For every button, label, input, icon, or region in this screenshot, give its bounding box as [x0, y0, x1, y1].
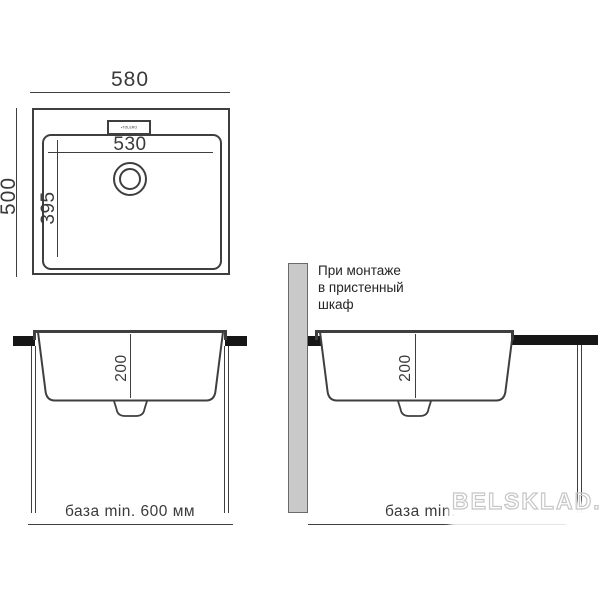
dim-line-overall-width: [30, 92, 230, 93]
mounting-note-line1: При монтаже: [318, 262, 438, 279]
sink-rim-right: [315, 330, 514, 333]
dim-line-bowl-depth: [57, 140, 58, 257]
drain-inner-circle: [119, 168, 141, 190]
dim-label-bowl-height-right: 200: [394, 338, 418, 398]
brand-logo-tab: ▪TOLERO: [107, 120, 151, 135]
dim-label-overall-width: 580: [95, 68, 165, 92]
dim-line-overall-depth: [16, 108, 17, 277]
base-width-note-left: база min. 600 мм: [30, 503, 230, 521]
watermark-text: BELSKLAD.bg: [452, 488, 600, 515]
drain-bump-left: [114, 401, 147, 416]
base-width-note-right: база min.: [385, 503, 455, 521]
dim-line-bowl-width: [48, 152, 213, 153]
drain-bump-right: [398, 401, 431, 416]
rim-cap: [224, 333, 227, 340]
mounting-note: При монтаже в пристенный шкаф: [318, 262, 438, 313]
sink-dimension-diagram: 580 500 ▪TOLERO 530 395 200 база min. 60…: [0, 0, 600, 600]
dim-label-bowl-height-left: 200: [110, 338, 134, 398]
dim-label-overall-depth: 500: [0, 166, 21, 226]
rim-cap: [33, 333, 36, 340]
rim-cap: [315, 333, 318, 340]
brand-logo-text: ▪TOLERO: [121, 126, 137, 130]
mounting-note-line2: в пристенный: [318, 279, 438, 296]
rim-cap: [511, 333, 514, 340]
sink-rim-left: [33, 330, 227, 333]
mounting-note-line3: шкаф: [318, 296, 438, 313]
